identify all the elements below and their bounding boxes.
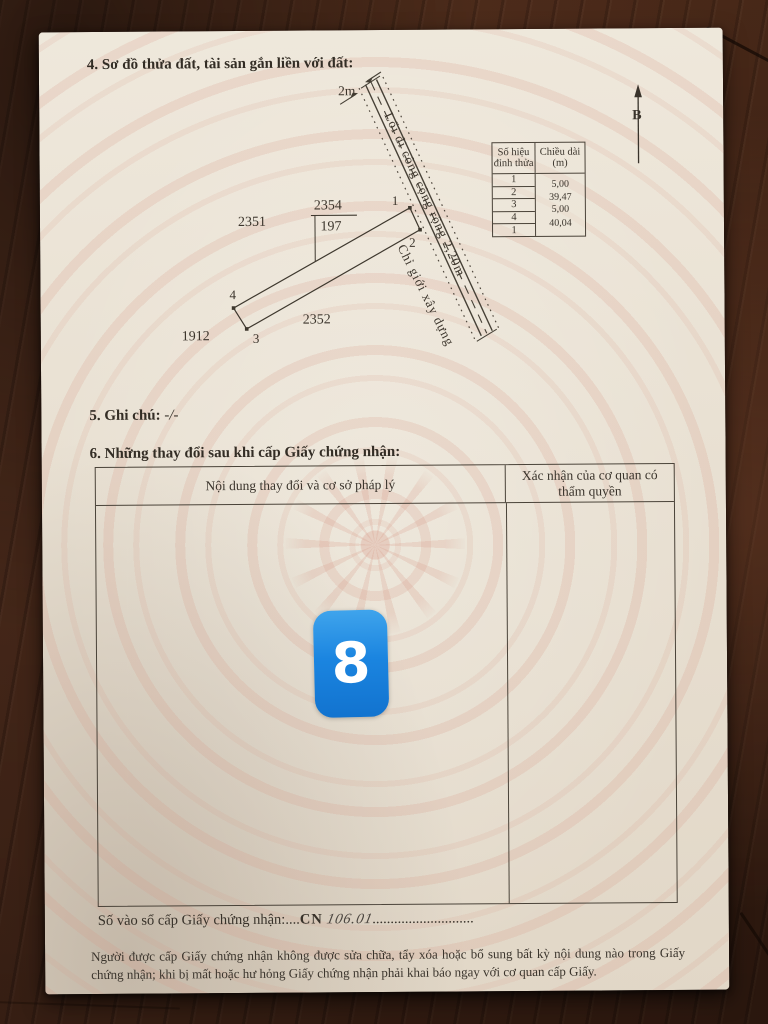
registry-code: CN <box>300 911 323 927</box>
road-width-label: 2m <box>338 83 355 99</box>
adjacent-parcel-label: 2352 <box>303 312 331 328</box>
vertex-label-3: 3 <box>253 331 260 347</box>
wood-plank-seam <box>0 1001 180 1010</box>
length-value: 5,00 <box>536 204 585 215</box>
registry-dotted-leader: ............................ <box>372 910 474 927</box>
vertex-label-1: 1 <box>392 193 399 209</box>
photo-of-document: { "colors": { "badge_blue": "#1e87e2", "… <box>0 0 768 1024</box>
vertex-length-table: Số hiệu đỉnh thửa Chiều dài (m) 1 2 3 4 … <box>491 142 586 238</box>
vertex-label-4: 4 <box>229 287 236 303</box>
changes-col1-header: Nội dung thay đổi và cơ sở pháp lý <box>96 465 506 505</box>
vertex-marker-2 <box>418 228 422 232</box>
vertex-id-cell: 4 <box>493 212 535 225</box>
registry-label: Số vào sổ cấp Giấy chứng nhận:.... <box>98 912 300 929</box>
vertex-label-2: 2 <box>409 235 416 251</box>
boundary-dotted-line-right <box>383 76 499 329</box>
annotation-marker-number: 8 <box>331 631 372 697</box>
section6-title: 6. Những thay đổi sau khi cấp Giấy chứng… <box>90 444 401 463</box>
wood-plank-seam <box>739 912 768 1021</box>
parcel-number-label: 2354 <box>302 198 354 214</box>
vertex-id-cell: 3 <box>493 199 535 212</box>
section5-label: 5. Ghi chú: <box>89 408 160 424</box>
road-end-tick-bottom <box>477 329 497 341</box>
vertex-marker-4 <box>232 306 236 310</box>
vertex-id-cell: 2 <box>493 187 535 200</box>
boundary-dotted-line-left <box>359 87 475 340</box>
registry-number-handwritten: 106.01 <box>325 911 374 928</box>
dimension-arrowhead <box>365 77 373 83</box>
vertex-id-cell: 1 <box>493 224 535 236</box>
north-arrowhead <box>634 84 642 97</box>
road-end-tick-top <box>361 76 380 88</box>
vertex-id-cell: 1 <box>493 174 535 187</box>
vertex-id-column: 1 2 3 4 1 <box>493 174 536 236</box>
vertex-table-col1-header: Số hiệu đỉnh thửa <box>492 143 535 173</box>
adjacent-parcel-label: 2351 <box>238 215 266 231</box>
section5-value: -/- <box>164 407 178 423</box>
length-value: 5,00 <box>536 179 585 190</box>
section5-row: 5. Ghi chú: -/- <box>89 407 178 425</box>
certificate-page: 4. Sơ đồ thửa đất, tài sản gắn liền với … <box>39 28 730 995</box>
dimension-arrow-line <box>367 72 381 81</box>
north-label: B <box>632 108 641 124</box>
length-value: 40,04 <box>536 218 585 229</box>
section4-title: 4. Sơ đồ thửa đất, tài sản gắn liền với … <box>87 55 354 74</box>
annotation-marker-badge[interactable]: 8 <box>313 609 390 718</box>
vertex-marker-1 <box>408 206 412 210</box>
length-column: 5,00 39,47 5,00 40,04 <box>536 174 585 236</box>
adjacent-parcel-label: 1912 <box>182 329 210 345</box>
length-value: 39,47 <box>536 192 585 203</box>
vertex-table-col2-header: Chiều dài (m) <box>535 143 584 173</box>
parcel-area-label: 197 <box>305 219 357 235</box>
registry-number-line: Số vào sổ cấp Giấy chứng nhận:....CN 106… <box>98 910 474 930</box>
changes-table-divider <box>506 503 510 903</box>
vertex-marker-3 <box>245 327 249 331</box>
changes-table-header: Nội dung thay đổi và cơ sở pháp lý Xác n… <box>96 464 674 506</box>
changes-col2-header: Xác nhận của cơ quan có thẩm quyền <box>506 464 674 502</box>
footer-notice: Người được cấp Giấy chứng nhận không đượ… <box>91 944 685 985</box>
